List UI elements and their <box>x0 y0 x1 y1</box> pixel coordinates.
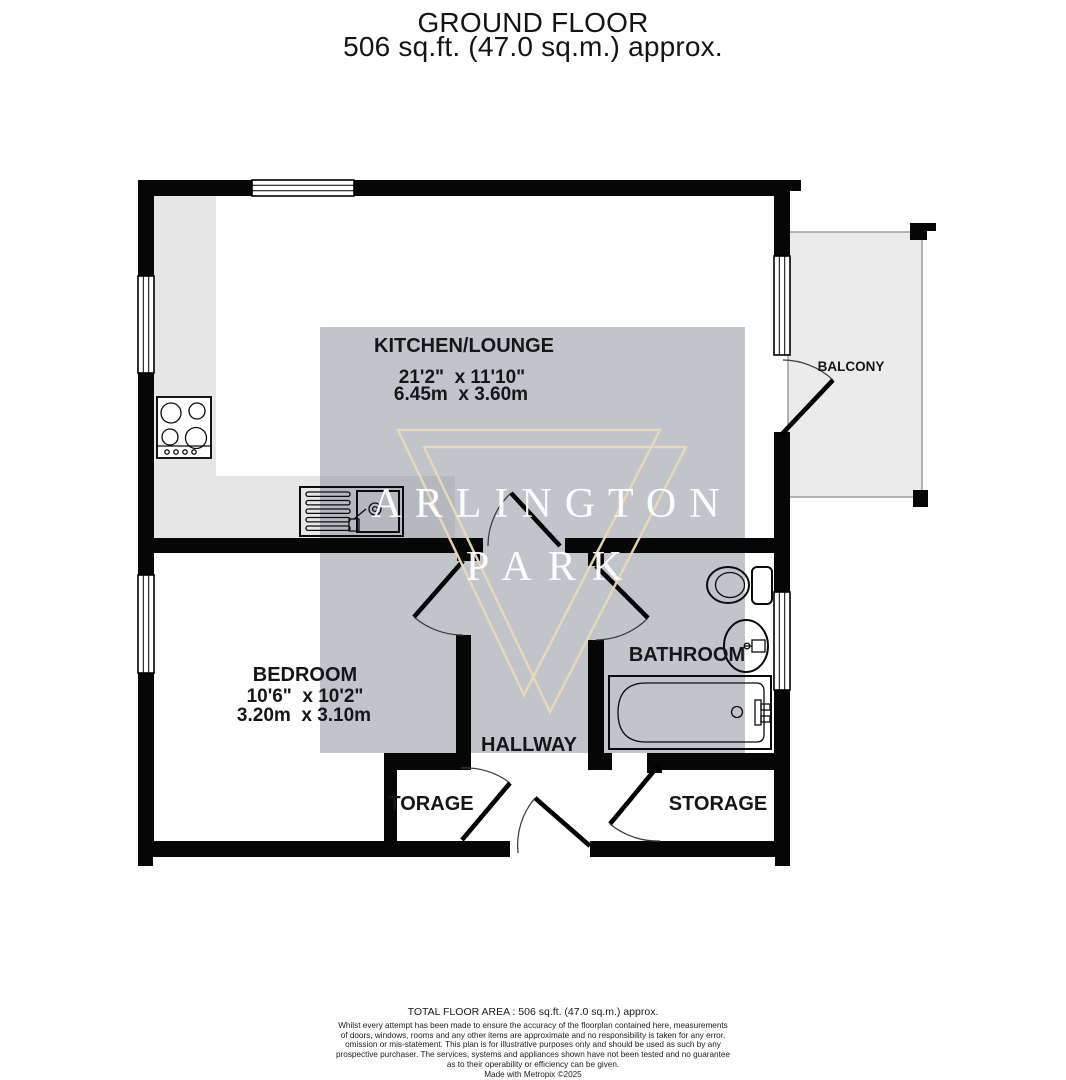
watermark-text-line2: PARK <box>466 544 638 590</box>
door-front-entrance <box>518 798 590 853</box>
disclaimer-line: prospective purchaser. The services, sys… <box>0 1050 1066 1060</box>
wall-segment <box>588 640 604 770</box>
wall-tick <box>138 857 153 866</box>
balcony-post <box>913 490 928 507</box>
label-hallway: HALLWAY <box>481 734 578 756</box>
wall-tick <box>790 180 801 191</box>
floorplan-page: GROUND FLOOR 506 sq.ft. (47.0 sq.m.) app… <box>0 0 1066 1080</box>
label-kitchen-dims-metric: 6.45m x 3.60m <box>394 384 528 405</box>
wall-segment <box>154 538 483 553</box>
disclaimer-line: Whilst every attempt has been made to en… <box>0 1021 1066 1031</box>
label-bedroom: BEDROOM <box>253 664 357 686</box>
footer: TOTAL FLOOR AREA : 506 sq.ft. (47.0 sq.m… <box>0 1006 1066 1079</box>
wall-segment <box>650 753 790 770</box>
balcony-post <box>927 223 936 231</box>
wall-segment <box>138 841 510 857</box>
label-balcony: BALCONY <box>818 359 885 374</box>
metropix-credit: Made with Metropix ©2025 <box>0 1070 1066 1080</box>
wall-segment <box>138 180 790 196</box>
label-storage-right: STORAGE <box>669 793 768 815</box>
label-storage-left: TORAGE <box>388 793 473 815</box>
wall-segment <box>456 635 471 770</box>
disclaimer-line: as to their operability or efficiency ca… <box>0 1060 1066 1070</box>
door-storage-right <box>610 766 660 841</box>
window-balcony-right <box>774 256 790 355</box>
floorplan-drawing: ARLINGTON PARK KITCHEN/LOUNGE 21'2" x 11… <box>0 0 1066 1080</box>
wall-segment <box>590 841 790 857</box>
window-top <box>252 180 354 196</box>
label-bathroom: BATHROOM <box>629 644 745 666</box>
disclaimer-line: omission or mis-statement. This plan is … <box>0 1040 1066 1050</box>
wall-segment <box>384 753 471 770</box>
label-bedroom-dims-imperial: 10'6" x 10'2" <box>247 686 364 707</box>
wall-tick <box>775 857 790 866</box>
label-bedroom-dims-metric: 3.20m x 3.10m <box>237 705 371 726</box>
balcony-post <box>910 223 927 240</box>
label-kitchen-lounge: KITCHEN/LOUNGE <box>374 335 554 357</box>
watermark-text-line1: ARLINGTON <box>371 481 732 527</box>
window-bathroom-right <box>774 592 790 690</box>
window-bedroom-left <box>138 575 154 673</box>
total-floor-area: TOTAL FLOOR AREA : 506 sq.ft. (47.0 sq.m… <box>0 1006 1066 1019</box>
stove-hob <box>157 397 211 458</box>
disclaimer-line: of doors, windows, rooms and any other i… <box>0 1031 1066 1041</box>
wall-segment <box>588 753 612 770</box>
window-kitchen-left <box>138 276 154 373</box>
